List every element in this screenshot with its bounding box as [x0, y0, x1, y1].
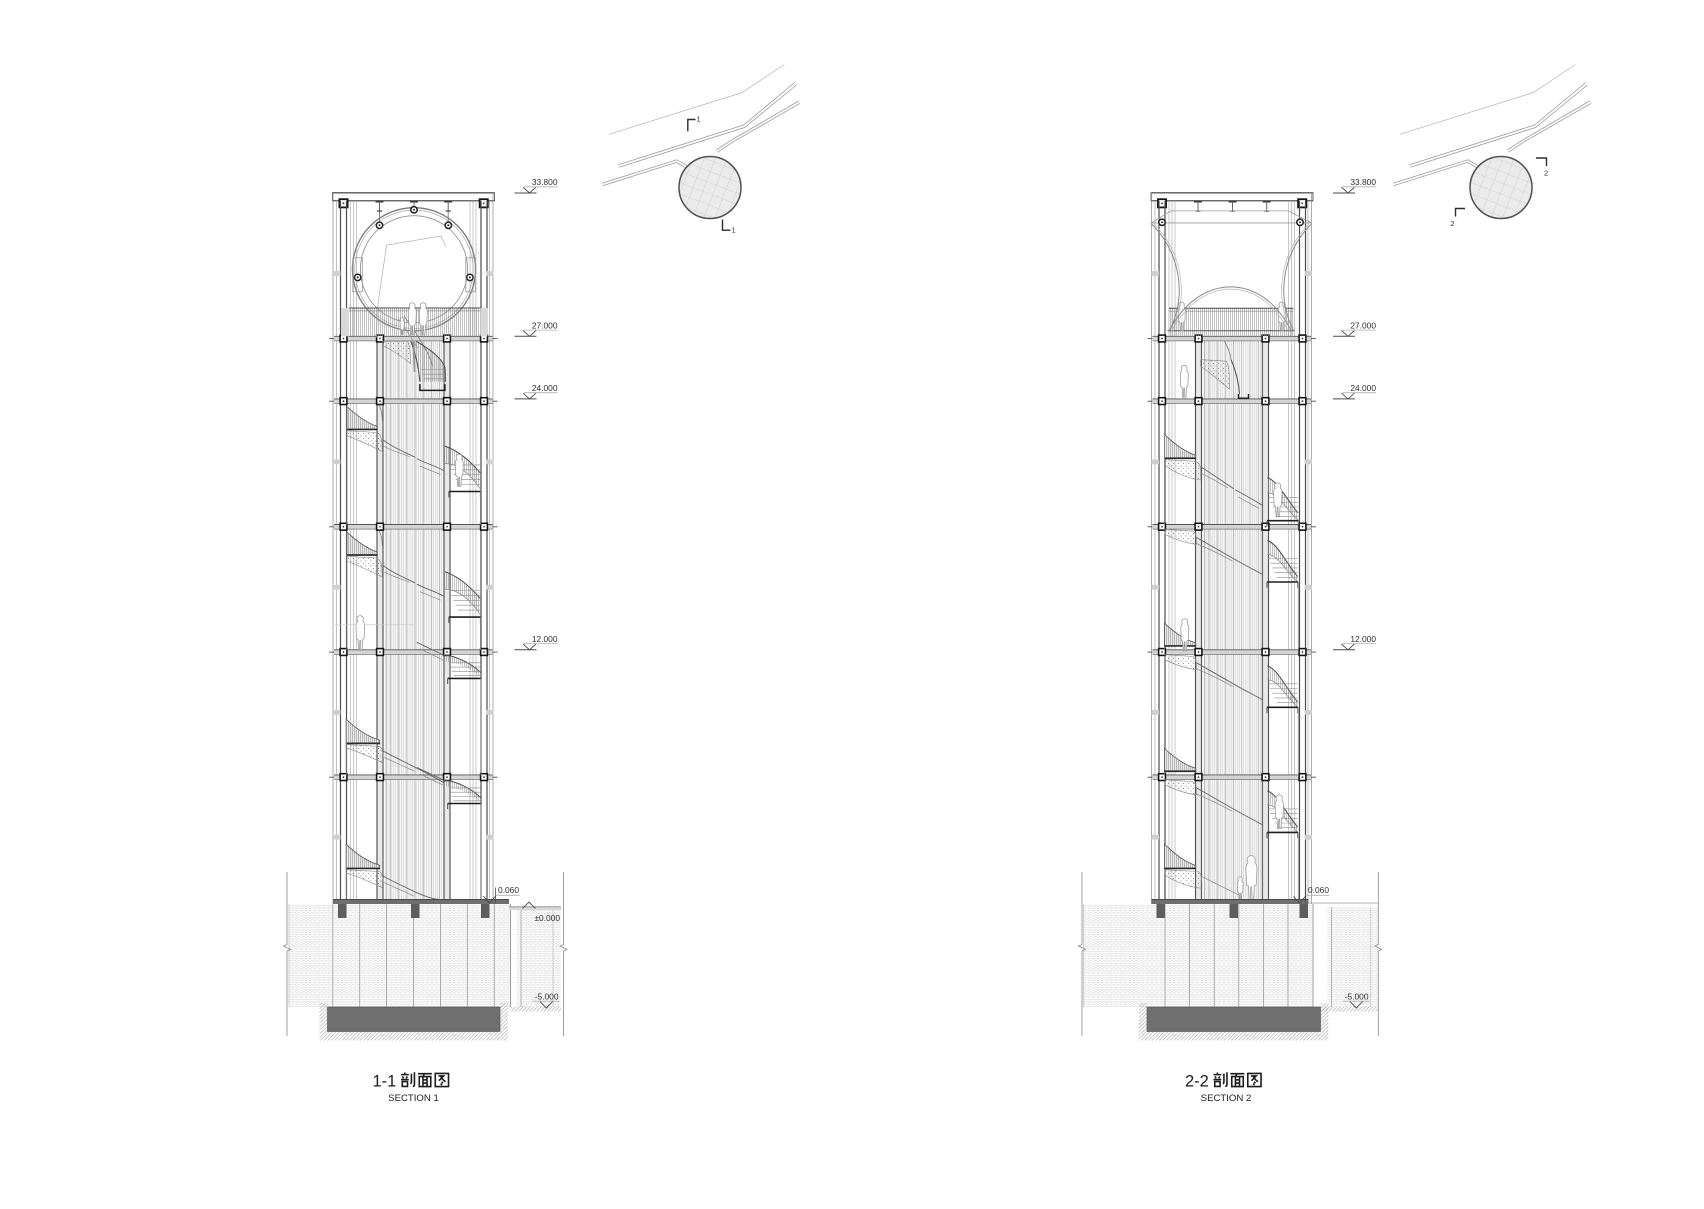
svg-text:1: 1: [732, 226, 736, 235]
svg-text:33.800: 33.800: [1350, 177, 1376, 187]
svg-text:1: 1: [697, 115, 701, 124]
svg-text:24.000: 24.000: [532, 383, 558, 393]
svg-text:2: 2: [1544, 169, 1548, 178]
svg-text:24.000: 24.000: [1350, 383, 1376, 393]
svg-text:2-2: 2-2: [1185, 1073, 1209, 1091]
svg-text:27.000: 27.000: [532, 320, 558, 330]
svg-text:12.000: 12.000: [532, 634, 558, 644]
svg-text:SECTION 1: SECTION 1: [388, 1093, 439, 1104]
svg-text:2: 2: [1451, 219, 1455, 228]
svg-text:27.000: 27.000: [1350, 320, 1376, 330]
svg-text:0.060: 0.060: [1308, 885, 1329, 895]
svg-text:SECTION 2: SECTION 2: [1201, 1093, 1252, 1104]
svg-text:1-1: 1-1: [373, 1073, 397, 1091]
svg-text:-5.000: -5.000: [535, 991, 559, 1001]
svg-text:-5.000: -5.000: [1345, 991, 1369, 1001]
svg-text:±0.000: ±0.000: [534, 913, 560, 923]
svg-text:0.060: 0.060: [498, 885, 519, 895]
svg-text:33.800: 33.800: [532, 177, 558, 187]
svg-text:12.000: 12.000: [1350, 634, 1376, 644]
